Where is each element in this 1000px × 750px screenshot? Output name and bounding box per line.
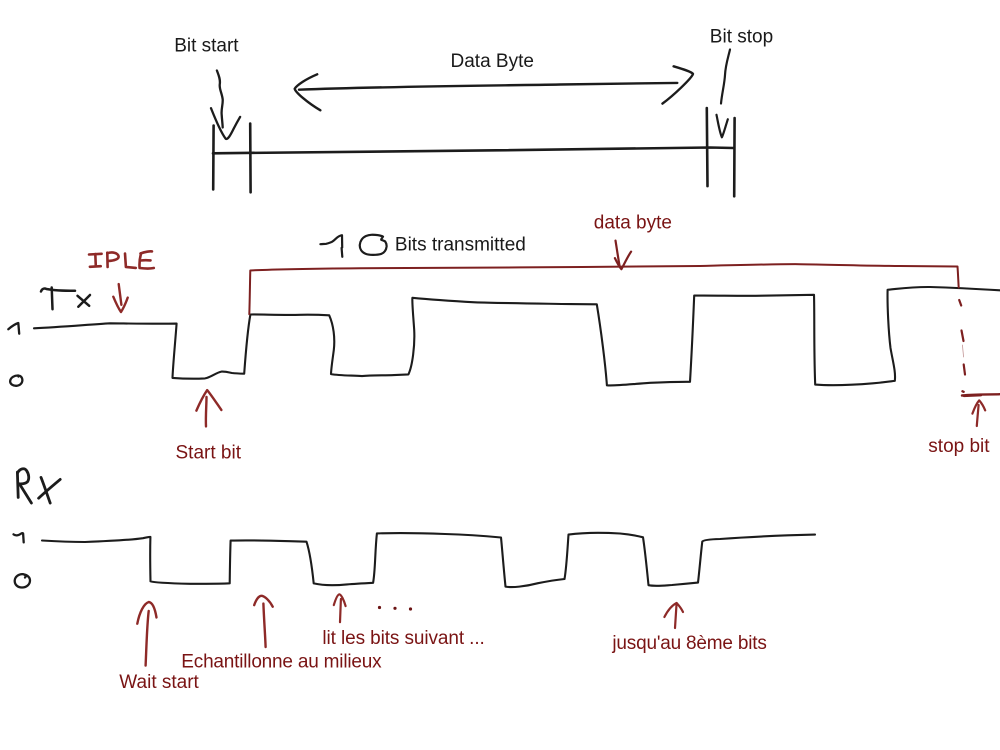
- svg-text:lit les bits suivant ...: lit les bits suivant ...: [322, 628, 484, 649]
- svg-text:Bits transmitted: Bits transmitted: [395, 234, 526, 255]
- svg-text:Echantillonne au milieux: Echantillonne au milieux: [181, 652, 382, 673]
- svg-text:jusqu'au 8ème bits: jusqu'au 8ème bits: [611, 633, 766, 654]
- svg-text:Data Byte: Data Byte: [451, 51, 534, 72]
- svg-text:Bit stop: Bit stop: [710, 27, 773, 48]
- svg-text:Bit start: Bit start: [174, 36, 239, 57]
- svg-text:Wait start: Wait start: [119, 672, 199, 693]
- svg-text:stop bit: stop bit: [928, 436, 990, 457]
- svg-text:data byte: data byte: [594, 213, 672, 234]
- svg-text:Start bit: Start bit: [176, 442, 242, 463]
